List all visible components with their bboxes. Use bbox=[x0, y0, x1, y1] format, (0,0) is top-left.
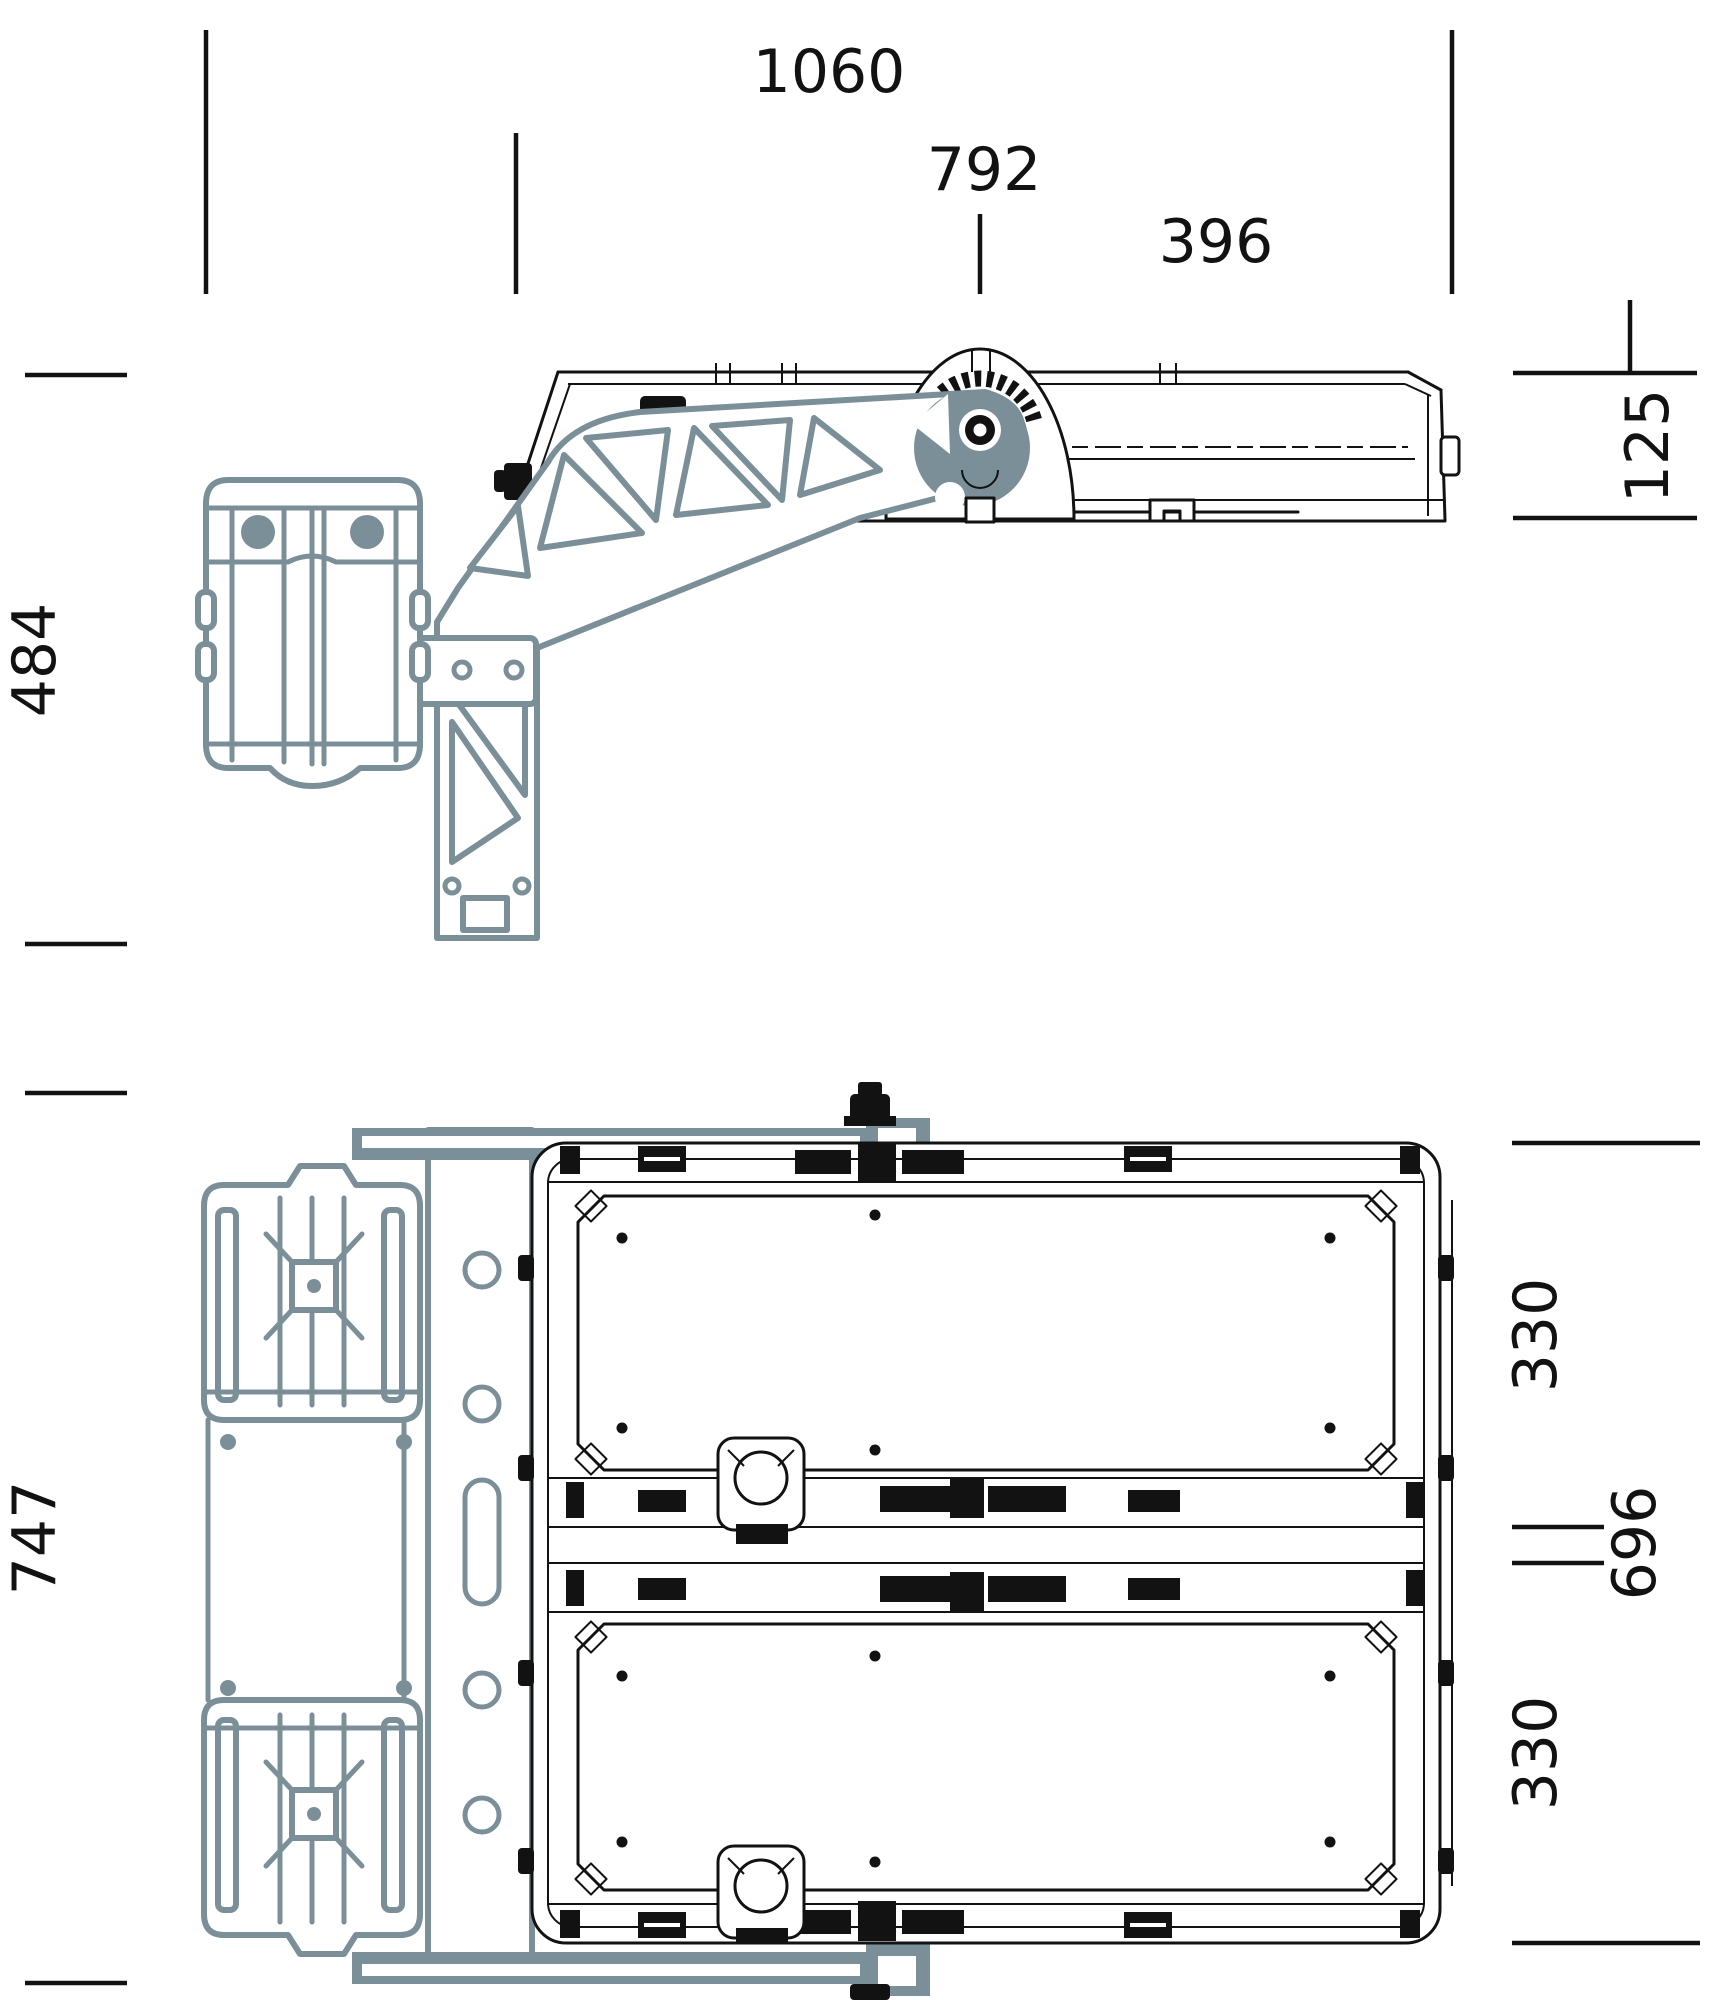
dim-pivot-to-end: 396 bbox=[1159, 207, 1274, 277]
dim-bracket-height: 484 bbox=[0, 603, 70, 718]
drawing-canvas: 1060 792 396 bbox=[0, 0, 1714, 2000]
dim-housing-height: 125 bbox=[1613, 389, 1683, 504]
cable-gland-upper bbox=[718, 1438, 804, 1544]
dim-frame-height: 696 bbox=[1600, 1486, 1670, 1601]
side-height-dimension: 484 bbox=[0, 375, 127, 944]
clamp-bolt-hole bbox=[241, 515, 275, 549]
dim-upper-module: 330 bbox=[1501, 1278, 1571, 1393]
pole-clamp-rear-lower bbox=[204, 1680, 420, 1954]
pole-clamp-rear-upper bbox=[204, 1166, 420, 1450]
pole-clamp-side bbox=[198, 480, 428, 786]
rear-view bbox=[204, 1082, 1454, 2000]
dim-lower-module: 330 bbox=[1501, 1696, 1571, 1811]
arm-foot-slot bbox=[463, 898, 507, 930]
dim-overall-width: 1060 bbox=[753, 37, 906, 107]
rear-overall-dimension: 747 bbox=[0, 1093, 127, 1983]
bottom-clip bbox=[1150, 500, 1194, 521]
clamp-bolt-hole bbox=[350, 515, 384, 549]
arm-clamp-plate bbox=[418, 638, 536, 704]
dimension-drawing: 1060 792 396 bbox=[0, 0, 1714, 2000]
side-view bbox=[198, 349, 1459, 938]
luminaire-frame bbox=[518, 1143, 1454, 1943]
bottom-eyebolt bbox=[850, 1984, 890, 2000]
width-dimensions: 1060 792 396 bbox=[206, 30, 1452, 294]
dim-body-width: 792 bbox=[927, 135, 1042, 205]
dim-overall-height: 747 bbox=[0, 1481, 70, 1596]
end-clip-right bbox=[1441, 437, 1459, 475]
frame-outer bbox=[532, 1143, 1440, 1943]
housing-height-dimension: 125 bbox=[1513, 300, 1697, 518]
cable-gland-lower bbox=[718, 1846, 804, 1942]
rear-frame-dimensions: 330 696 330 bbox=[1501, 1143, 1700, 1943]
